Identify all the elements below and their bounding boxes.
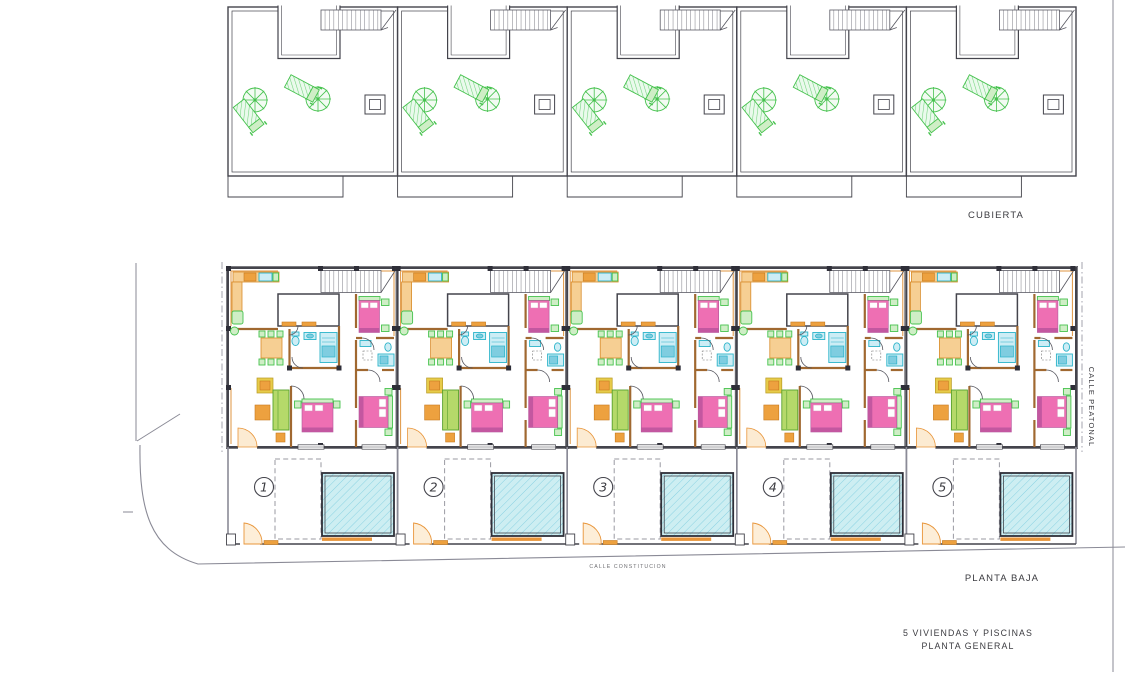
plot-number-label: 5 <box>938 480 946 495</box>
bottom-street-label: CALLE CONSTITUCION <box>589 564 666 570</box>
plot-number-4: 4 <box>763 478 782 497</box>
project-title: 5 VIVIENDAS Y PISCINAS <box>903 628 1033 638</box>
ground-unit-1 <box>226 266 399 545</box>
plot-number-5: 5 <box>933 478 952 497</box>
roof-unit-3 <box>567 6 737 198</box>
ground-unit-2 <box>396 266 569 545</box>
plot-number-label: 3 <box>599 480 607 495</box>
street-boundary-left-chamfer <box>137 414 180 441</box>
ground-plan-label: PLANTA BAJA <box>965 573 1039 584</box>
roof-unit-5 <box>906 6 1076 198</box>
roof-plan-row <box>228 6 1076 198</box>
ground-plan-row <box>226 266 1078 545</box>
plot-number-label: 2 <box>430 480 438 495</box>
site-plan-drawing: 1 2 3 4 5 CUBIERTA PLANTA BAJA 5 VIVIEND… <box>0 0 1125 678</box>
plot-number-2: 2 <box>424 478 443 497</box>
site-plan-svg: 1 2 3 4 5 CUBIERTA PLANTA BAJA 5 VIVIEND… <box>0 0 1125 678</box>
plot-number-1: 1 <box>255 478 274 497</box>
plot-number-3: 3 <box>594 478 613 497</box>
roof-plan-label: CUBIERTA <box>968 210 1024 221</box>
plot-number-label: 4 <box>769 480 777 495</box>
ground-unit-3 <box>565 266 738 545</box>
ground-unit-5 <box>904 266 1077 545</box>
project-subtitle: PLANTA GENERAL <box>922 641 1015 651</box>
roof-unit-4 <box>737 6 907 198</box>
street-curb-bottom <box>140 445 1125 564</box>
plot-number-label: 1 <box>260 480 268 495</box>
ground-unit-4 <box>735 266 908 545</box>
roof-unit-2 <box>398 6 568 198</box>
pedestrian-street-label: CALLE PEATONAL <box>1087 367 1096 448</box>
roof-unit-1 <box>228 6 398 198</box>
